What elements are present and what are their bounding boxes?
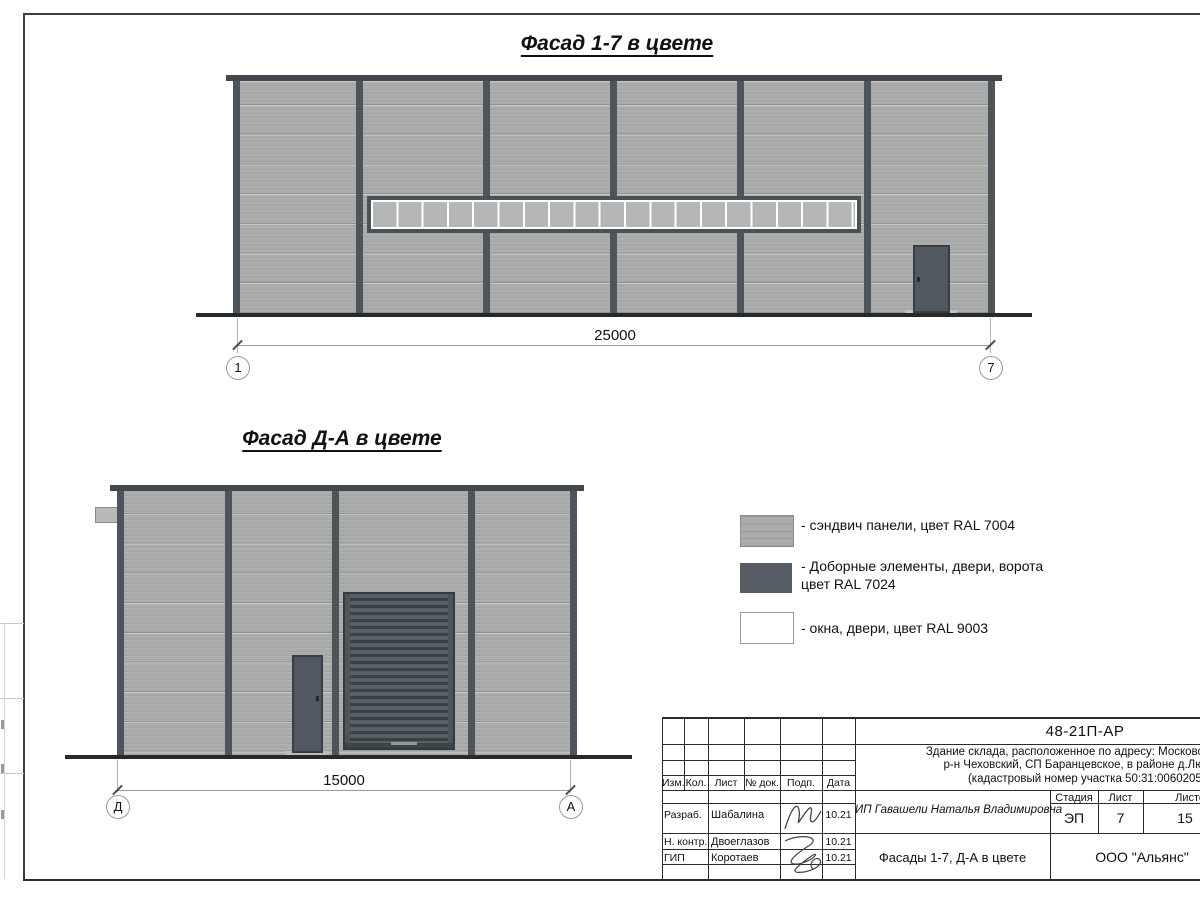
column-mullion — [117, 491, 124, 755]
entrance-door — [913, 245, 950, 313]
margin-stamp-mark — [1, 720, 4, 729]
project-address-line1: Здание склада, расположенное по адресу: … — [858, 746, 1200, 759]
facade-1-7-wall — [233, 81, 995, 313]
column-mullion — [570, 491, 577, 755]
column-mullion — [356, 81, 363, 313]
axis-marker-d: Д — [106, 795, 130, 819]
facade-d-a-wall — [117, 491, 577, 755]
axis-marker-1: 1 — [226, 356, 250, 380]
row-role: ГИП — [664, 852, 708, 864]
facade-d-a-title: Фасад Д-А в цвете — [177, 427, 507, 451]
titleblock-line — [662, 760, 855, 761]
row-name: Коротаев — [711, 852, 779, 864]
col-header-podp: Подп. — [780, 777, 822, 789]
legend-label: - Доборные элементы, двери, ворота цвет … — [801, 557, 1043, 593]
titleblock-line — [662, 803, 855, 804]
row-date: 10.21 — [822, 809, 855, 821]
col-header-izm: Изм. — [662, 777, 684, 789]
window-glass-panes — [373, 202, 855, 227]
sheet-header: Лист — [1098, 792, 1143, 804]
document-number: 48-21П-АР — [855, 723, 1200, 740]
dimension-line — [237, 345, 990, 346]
column-mullion — [468, 491, 475, 755]
sheet-frame-left — [23, 13, 25, 881]
ground-line — [196, 313, 1032, 317]
entrance-door — [292, 655, 323, 753]
col-header-data: Дата — [822, 777, 855, 789]
project-address-line3: (кадастровый номер участка 50:31:0060205… — [858, 773, 1200, 786]
legend-label: - окна, двери, цвет RAL 9003 — [801, 619, 988, 637]
stage-header: Стадия — [1050, 792, 1098, 804]
ground-line — [65, 755, 632, 759]
column-mullion — [988, 81, 995, 313]
legend-label-line2: цвет RAL 7024 — [801, 575, 1043, 593]
gate-handle — [391, 742, 417, 745]
drawing-sheet: Фасад 1-7 в цвете 25000 1 7 Фасад Д-А в … — [0, 0, 1200, 900]
extension-line — [990, 318, 991, 353]
row-name: Шабалина — [711, 809, 779, 821]
gate-rail — [345, 594, 350, 748]
column-mullion — [864, 81, 871, 313]
titleblock-line — [662, 833, 1200, 834]
sheet-frame-bottom — [23, 879, 1200, 881]
extension-line — [237, 318, 238, 353]
column-mullion — [233, 81, 240, 313]
signature — [779, 831, 827, 877]
dimension-value: 25000 — [520, 327, 710, 344]
drawing-title: Фасады 1-7, Д-А в цвете — [855, 850, 1050, 865]
margin-stamp-line — [4, 623, 5, 879]
margin-stamp-mark — [1, 764, 4, 773]
titleblock-line — [662, 744, 1200, 745]
legend-swatch-trim-elements — [740, 563, 792, 593]
gate-rail — [448, 594, 453, 748]
company-name: ООО "Альянс" — [1050, 849, 1200, 865]
sheet-frame-top — [23, 13, 1200, 15]
titleblock-border — [662, 717, 1200, 719]
column-mullion — [225, 491, 232, 755]
titleblock-line — [708, 717, 709, 880]
row-role: Н. контр. — [664, 836, 708, 848]
client-name: ИП Гавашели Наталья Владимировна — [855, 804, 1050, 816]
titleblock-line — [662, 717, 663, 880]
legend-swatch-sandwich-panel — [740, 515, 794, 547]
sheets-header: Листов — [1146, 792, 1200, 804]
row-name: Двоеглазов — [711, 836, 779, 848]
facade-1-7-title: Фасад 1-7 в цвете — [397, 32, 837, 56]
legend-swatch-windows — [740, 612, 794, 644]
door-handle — [316, 696, 319, 701]
col-header-doc: № док. — [744, 777, 780, 789]
project-address-line2: р-н Чеховский, СП Баранцевское, в районе… — [858, 759, 1200, 772]
legend-label: - сэндвич панели, цвет RAL 7004 — [801, 516, 1015, 534]
door-handle — [917, 277, 920, 282]
roller-gate — [343, 592, 455, 750]
dimension-value: 15000 — [249, 772, 439, 789]
axis-marker-7: 7 — [979, 356, 1003, 380]
column-mullion — [332, 491, 339, 755]
col-header-list: Лист — [708, 777, 744, 789]
axis-marker-a: А — [559, 795, 583, 819]
sheet-value: 7 — [1098, 810, 1143, 826]
dimension-line — [117, 790, 571, 791]
sheets-value: 15 — [1143, 810, 1200, 826]
legend-label-line1: - Доборные элементы, двери, ворота — [801, 557, 1043, 575]
margin-stamp-mark — [1, 810, 4, 819]
row-role: Разраб. — [664, 809, 708, 821]
ribbon-window — [367, 196, 861, 233]
titleblock-line — [662, 790, 1200, 791]
project-address: Здание склада, расположенное по адресу: … — [858, 746, 1200, 786]
titleblock-line — [662, 775, 855, 776]
col-header-kol: Кол. — [684, 777, 708, 789]
signature — [782, 799, 824, 835]
